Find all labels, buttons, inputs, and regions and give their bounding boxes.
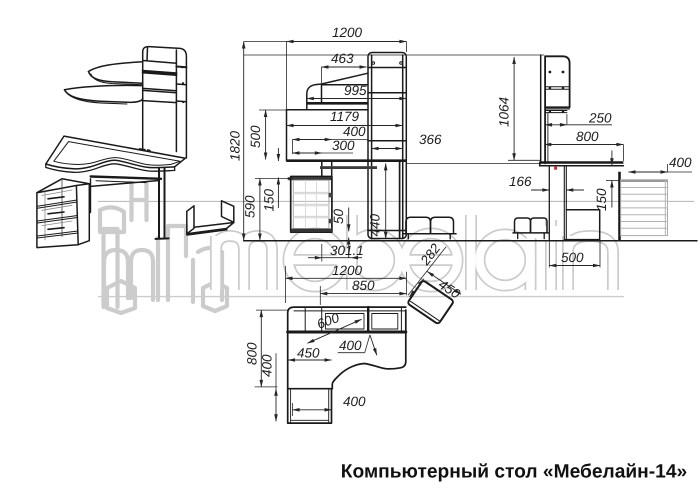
svg-text:400: 400 — [343, 124, 366, 139]
svg-text:301.1: 301.1 — [330, 243, 364, 258]
svg-text:300: 300 — [332, 138, 355, 153]
svg-text:400: 400 — [343, 394, 366, 409]
svg-text:500: 500 — [248, 125, 263, 148]
svg-text:400: 400 — [339, 338, 362, 353]
svg-text:995: 995 — [344, 83, 367, 98]
svg-text:1179: 1179 — [330, 109, 360, 124]
svg-text:1200: 1200 — [332, 25, 363, 40]
svg-text:250: 250 — [588, 111, 612, 126]
svg-text:166: 166 — [509, 174, 532, 189]
svg-text:150: 150 — [594, 188, 609, 211]
svg-text:1200: 1200 — [332, 263, 363, 278]
svg-text:800: 800 — [245, 342, 260, 365]
svg-text:Компьютерный стол «Мебелайн-14: Компьютерный стол «Мебелайн-14» — [341, 462, 687, 483]
svg-text:1820: 1820 — [228, 130, 243, 161]
svg-text:800: 800 — [576, 129, 599, 144]
svg-text:400: 400 — [669, 155, 692, 170]
svg-text:850: 850 — [352, 278, 375, 293]
svg-text:366: 366 — [419, 132, 442, 147]
svg-text:500: 500 — [561, 250, 584, 265]
svg-text:590: 590 — [243, 195, 258, 218]
svg-text:463: 463 — [331, 51, 354, 66]
svg-text:400: 400 — [260, 354, 275, 377]
svg-text:150: 150 — [262, 188, 277, 211]
svg-text:1064: 1064 — [497, 97, 512, 127]
svg-text:440: 440 — [368, 213, 383, 236]
svg-text:50: 50 — [331, 208, 346, 224]
svg-text:450: 450 — [297, 346, 320, 361]
